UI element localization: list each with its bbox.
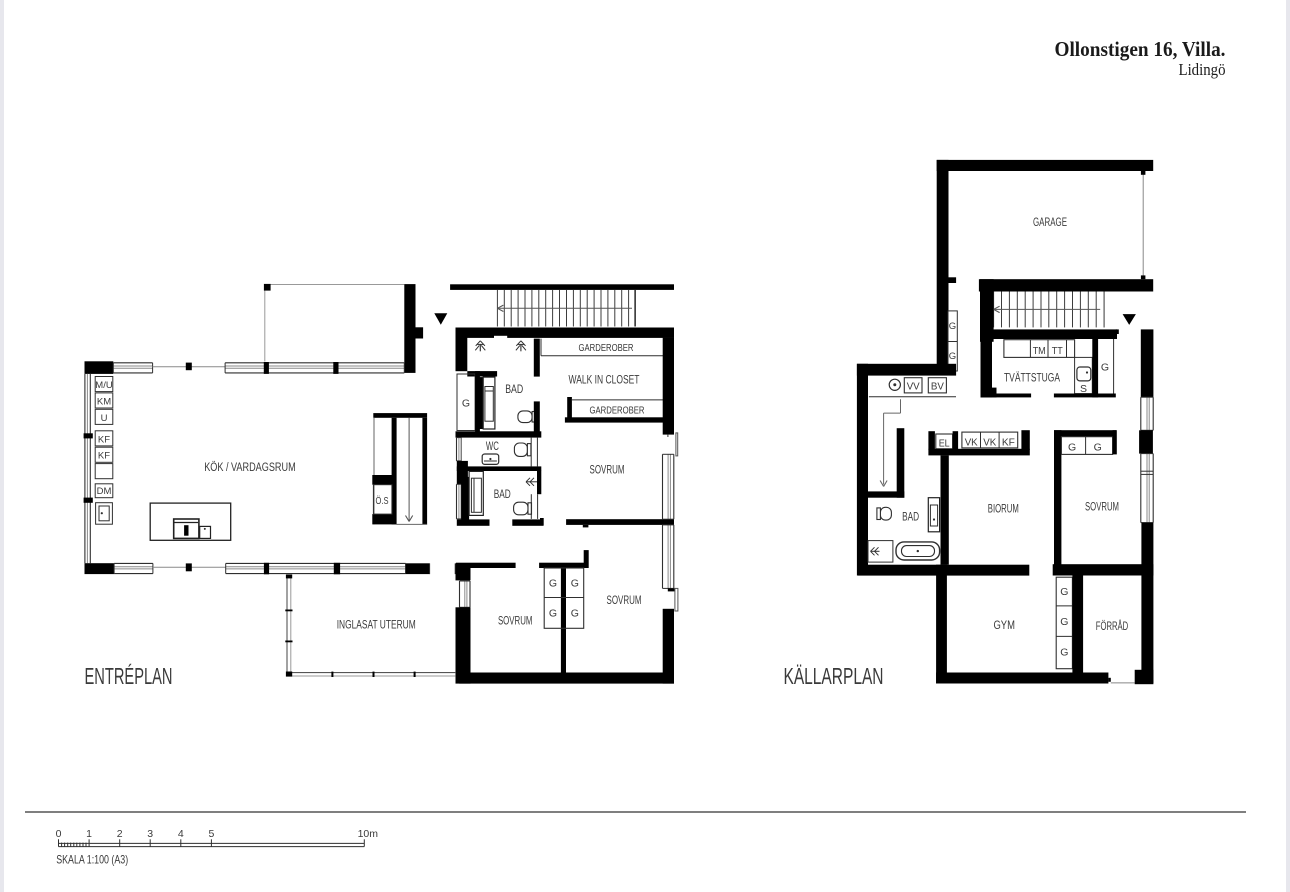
svg-text:5: 5 xyxy=(208,828,214,840)
svg-text:G: G xyxy=(1060,647,1068,659)
svg-text:WC: WC xyxy=(486,441,499,453)
svg-text:G: G xyxy=(462,398,470,410)
svg-text:KM: KM xyxy=(97,396,111,407)
svg-text:TT: TT xyxy=(1052,345,1064,357)
svg-text:KÖK / VARDAGSRUM: KÖK / VARDAGSRUM xyxy=(204,462,296,474)
svg-text:KF: KF xyxy=(98,434,110,445)
svg-text:G: G xyxy=(1060,616,1068,628)
svg-text:G: G xyxy=(1068,442,1076,454)
svg-text:KÄLLARPLAN: KÄLLARPLAN xyxy=(784,663,884,689)
svg-text:SOVRUM: SOVRUM xyxy=(607,595,642,607)
svg-text:BAD: BAD xyxy=(494,489,511,501)
svg-text:FÖRRÅD: FÖRRÅD xyxy=(1096,620,1129,633)
svg-text:VV: VV xyxy=(907,381,920,393)
svg-text:U: U xyxy=(101,413,108,424)
svg-text:2: 2 xyxy=(117,828,123,840)
svg-text:BIORUM: BIORUM xyxy=(988,503,1019,515)
svg-text:BAD: BAD xyxy=(902,512,919,524)
svg-text:G: G xyxy=(1101,362,1109,374)
svg-text:G: G xyxy=(949,321,956,332)
svg-text:GARAGE: GARAGE xyxy=(1033,217,1067,229)
svg-text:BAD: BAD xyxy=(505,384,523,396)
svg-text:S: S xyxy=(1080,383,1087,395)
svg-text:GARDEROBER: GARDEROBER xyxy=(590,404,645,416)
svg-text:KF: KF xyxy=(1002,437,1015,449)
svg-text:SOVRUM: SOVRUM xyxy=(1085,502,1119,514)
svg-text:SKALA 1:100 (A3): SKALA 1:100 (A3) xyxy=(56,852,128,866)
svg-text:VK: VK xyxy=(983,437,996,449)
svg-text:WALK IN CLOSET: WALK IN CLOSET xyxy=(569,374,640,386)
svg-text:10m: 10m xyxy=(358,828,379,840)
svg-text:M/U: M/U xyxy=(95,380,113,391)
svg-text:G: G xyxy=(1060,586,1068,598)
svg-text:G: G xyxy=(1094,442,1102,454)
svg-text:ENTRÉPLAN: ENTRÉPLAN xyxy=(85,663,173,689)
svg-text:DM: DM xyxy=(97,486,112,497)
svg-text:Lidingö: Lidingö xyxy=(1179,60,1226,79)
svg-text:0: 0 xyxy=(56,828,62,840)
svg-text:Ö.S: Ö.S xyxy=(376,495,389,507)
svg-text:TVÄTTSTUGA: TVÄTTSTUGA xyxy=(1004,373,1060,385)
svg-text:EL: EL xyxy=(939,438,950,450)
svg-text:SOVRUM: SOVRUM xyxy=(498,616,533,628)
svg-text:INGLASAT UTERUM: INGLASAT UTERUM xyxy=(337,619,416,631)
svg-text:BV: BV xyxy=(931,381,944,393)
svg-text:1: 1 xyxy=(86,828,92,840)
svg-text:G: G xyxy=(549,577,557,589)
svg-text:KF: KF xyxy=(98,451,110,462)
svg-text:GYM: GYM xyxy=(993,620,1015,632)
svg-text:GARDEROBER: GARDEROBER xyxy=(579,342,634,354)
svg-text:G: G xyxy=(549,608,557,620)
svg-text:3: 3 xyxy=(147,828,153,840)
svg-text:VK: VK xyxy=(965,437,978,449)
svg-text:G: G xyxy=(571,577,579,589)
svg-text:G: G xyxy=(571,608,579,620)
svg-text:G: G xyxy=(949,351,956,362)
svg-text:Ollonstigen 16, Villa.: Ollonstigen 16, Villa. xyxy=(1055,37,1226,61)
svg-text:4: 4 xyxy=(178,828,184,840)
svg-text:SOVRUM: SOVRUM xyxy=(590,465,625,477)
svg-text:TM: TM xyxy=(1033,345,1046,357)
